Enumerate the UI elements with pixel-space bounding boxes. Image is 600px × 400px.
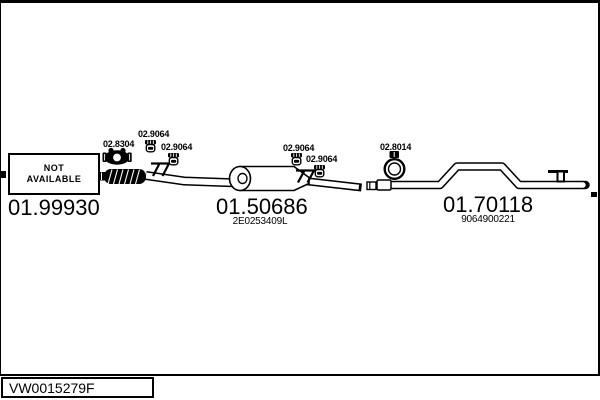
not-available-line2: AVAILABLE [27,174,82,185]
rubber-hanger-icon [291,153,302,165]
oem-number-middle: 2E0253409L [216,217,304,227]
fitting-label-hanger-4: 02.9064 [306,155,337,164]
muffler-inlet [238,174,247,184]
part-number-rear: 01.70118 [443,194,533,216]
clamp-icon-front [103,148,132,165]
fitting-label-hanger-3: 02.9064 [283,144,314,153]
fitting-label-clamp-front: 02.8304 [103,140,134,149]
rubber-hanger-icon [314,165,325,177]
flex-pipe [98,169,146,184]
rubber-hanger-icon [168,153,179,165]
not-available-line1: NOT [44,163,65,174]
rear-pipe-end-tab [591,192,597,197]
fitting-label-hanger-1: 02.9064 [138,130,169,139]
not-available-box: NOT AVAILABLE [8,153,100,195]
exhaust-system-diagram: NOT AVAILABLE 01.99930 01.50686 2E025340… [0,0,600,400]
pipe-connector [367,182,376,190]
hanger-bracket-rear [548,172,568,182]
fitting-label-clamp-rear: 02.8014 [380,143,411,152]
clamp-icon-rear [385,151,405,179]
rear-pipe [390,167,586,186]
front-to-muffler-pipe [146,176,240,184]
part-number-middle: 01.50686 [216,196,308,218]
oem-number-rear: 9064900221 [443,215,533,225]
rear-pipe-sleeve [377,180,391,190]
fitting-label-hanger-2: 02.9064 [161,143,192,152]
rubber-hanger-icon [145,140,156,152]
front-pipe-stub [1,171,6,178]
part-number-front: 01.99930 [8,197,100,219]
